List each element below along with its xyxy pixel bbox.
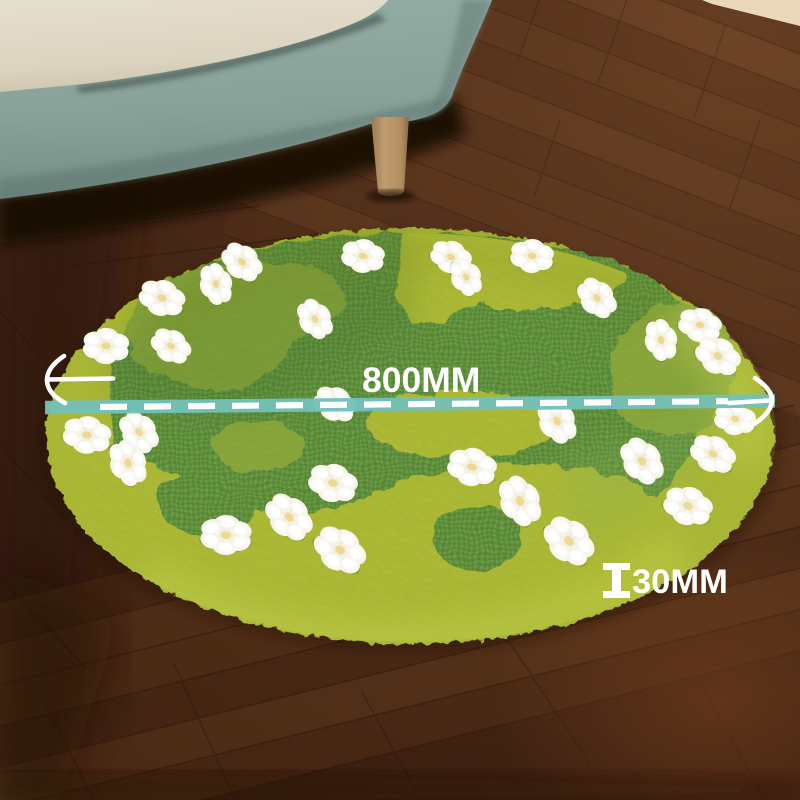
svg-text:30MM: 30MM <box>632 563 728 601</box>
svg-text:800MM: 800MM <box>362 360 480 400</box>
